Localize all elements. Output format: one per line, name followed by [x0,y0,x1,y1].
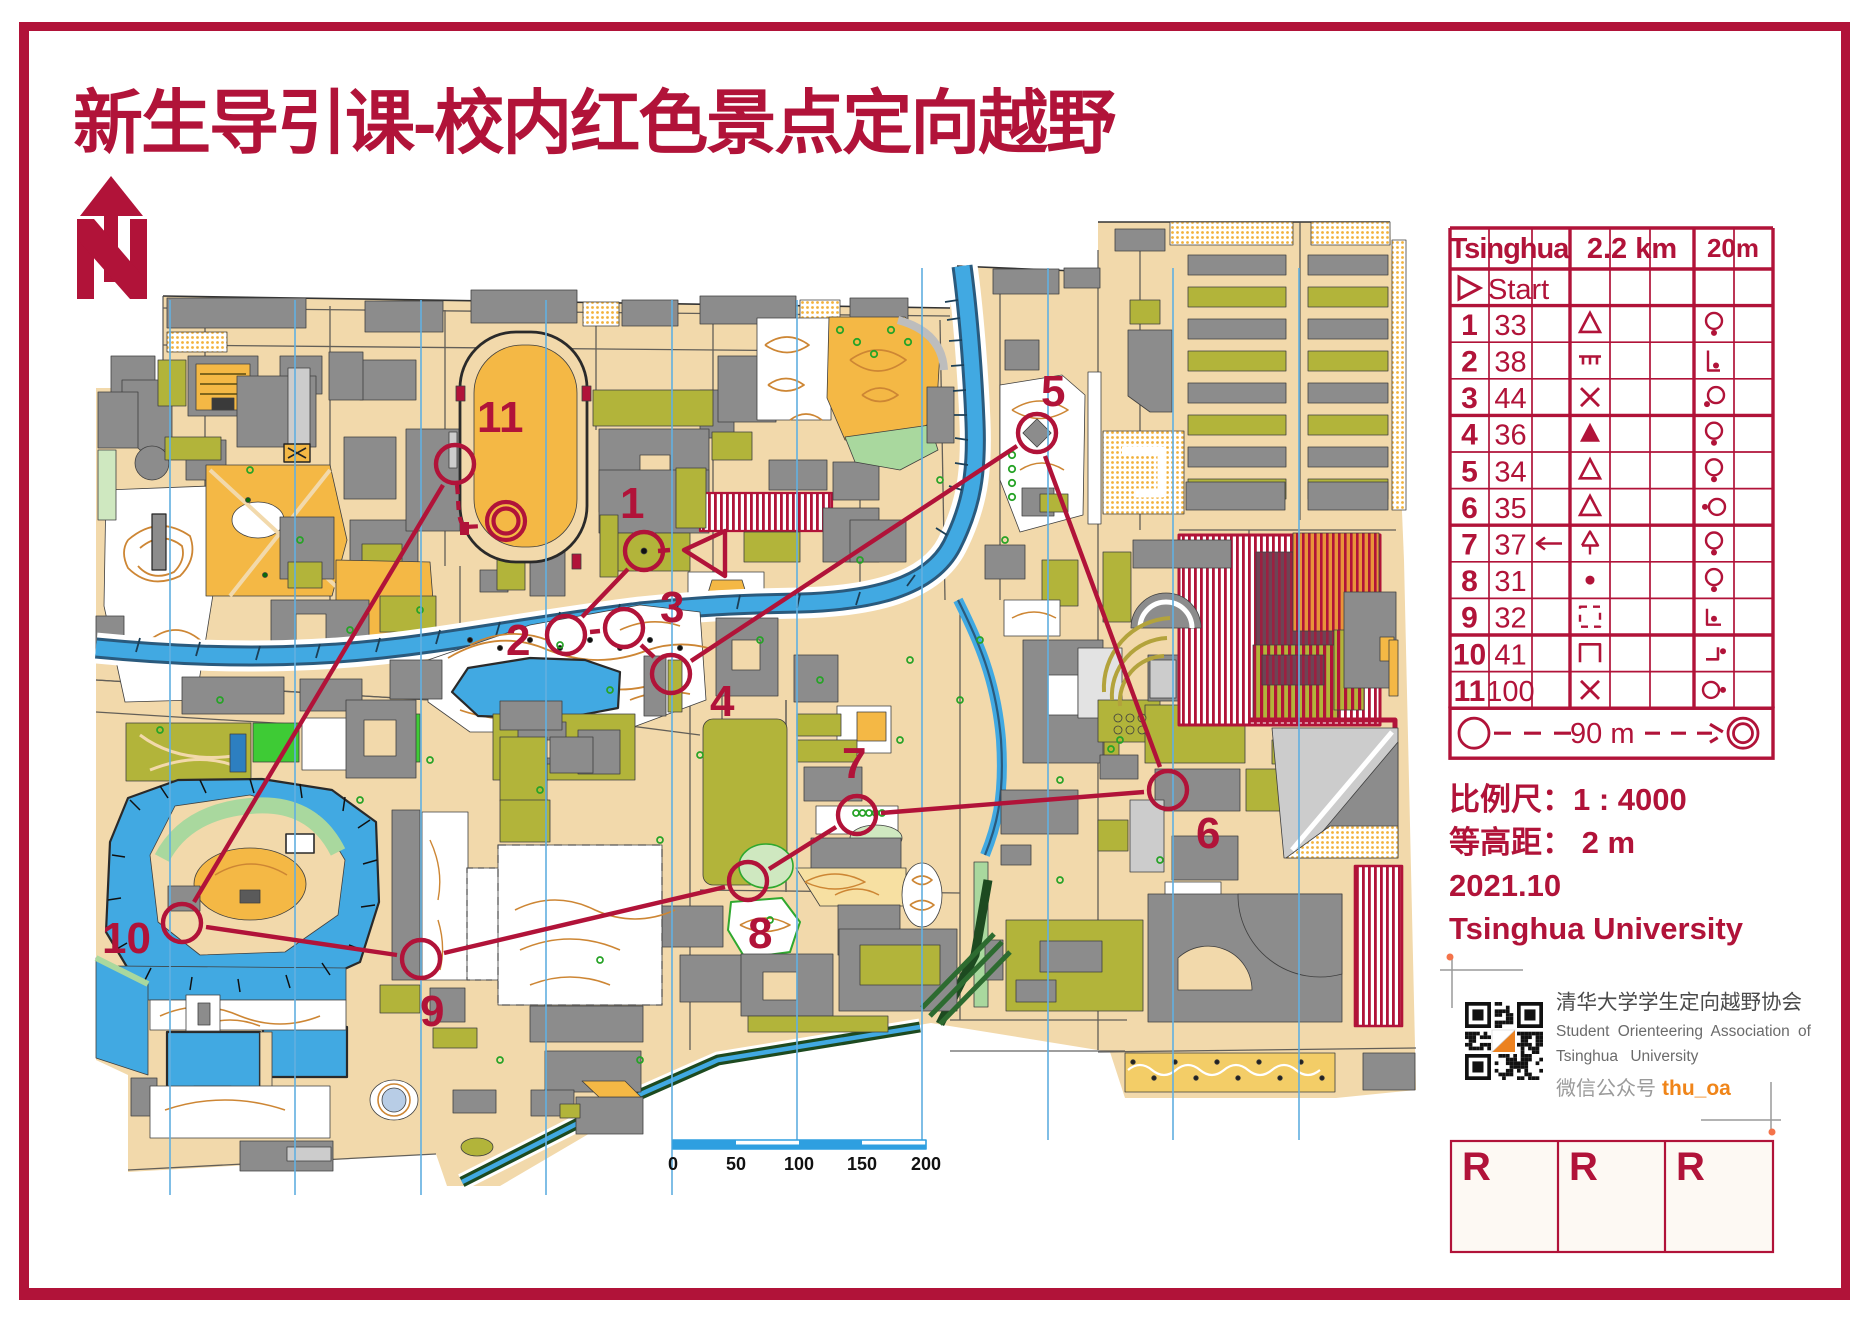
svg-text:Start: Start [1488,274,1549,306]
svg-text:9: 9 [1461,602,1478,635]
svg-text:8: 8 [748,909,772,958]
svg-text:R: R [1462,1145,1491,1189]
svg-text:38: 38 [1494,347,1526,379]
svg-text:Tsinghua University: Tsinghua University [1556,1048,1699,1065]
svg-text:4: 4 [1461,419,1478,452]
svg-text:0: 0 [668,1154,678,1174]
svg-text:微信公众号: 微信公众号 [1556,1077,1656,1100]
svg-text:35: 35 [1494,493,1526,525]
svg-text:Tsinghua University: Tsinghua University [1449,911,1744,946]
svg-text:200: 200 [911,1154,941,1174]
svg-text:10: 10 [102,914,151,963]
svg-text:3: 3 [660,583,684,632]
svg-text:2.2 km: 2.2 km [1587,233,1677,265]
svg-text:Student Orienteering Associati: Student Orienteering Association of [1556,1023,1812,1040]
svg-text:11: 11 [477,393,524,442]
svg-text:5: 5 [1461,455,1478,488]
svg-text:1: 1 [620,479,644,528]
svg-text:清华大学学生定向越野协会: 清华大学学生定向越野协会 [1556,991,1802,1014]
svg-text:7: 7 [1461,529,1478,562]
svg-text:1: 1 [1461,309,1478,342]
svg-text:11: 11 [1454,675,1486,708]
svg-text:100: 100 [784,1154,814,1174]
svg-text:41: 41 [1494,639,1526,671]
svg-text:37: 37 [1494,530,1526,562]
svg-text:6: 6 [1461,492,1478,525]
svg-text:等高距： 2 m: 等高距： 2 m [1449,825,1635,860]
svg-text:100: 100 [1486,676,1534,708]
svg-text:7: 7 [842,739,866,788]
svg-text:10: 10 [1453,638,1486,671]
svg-text:8: 8 [1461,565,1478,598]
svg-text:2: 2 [1461,346,1478,379]
svg-text:33: 33 [1494,310,1526,342]
svg-text:R: R [1569,1145,1598,1189]
svg-text:32: 32 [1494,603,1526,635]
svg-text:5: 5 [1041,367,1065,416]
svg-text:31: 31 [1494,566,1526,598]
svg-text:4: 4 [710,677,735,726]
svg-text:6: 6 [1196,809,1220,858]
svg-text:R: R [1676,1145,1705,1189]
svg-text:2021.10: 2021.10 [1449,868,1561,903]
svg-text:34: 34 [1494,456,1526,488]
svg-text:20m: 20m [1707,233,1759,263]
svg-text:90 m: 90 m [1570,718,1634,750]
svg-text:比例尺：1 : 4000: 比例尺：1 : 4000 [1449,782,1687,817]
svg-text:Tsinghua: Tsinghua [1450,233,1571,265]
svg-text:3: 3 [1461,382,1478,415]
svg-text:新生导引课-校内红色景点定向越野: 新生导引课-校内红色景点定向越野 [73,84,1116,162]
svg-text:2: 2 [506,616,530,665]
svg-text:36: 36 [1494,420,1526,452]
svg-text:50: 50 [726,1154,746,1174]
svg-text:150: 150 [847,1154,877,1174]
svg-text:9: 9 [420,987,444,1036]
svg-text:44: 44 [1494,383,1526,415]
svg-text:thu_oa: thu_oa [1662,1077,1731,1100]
